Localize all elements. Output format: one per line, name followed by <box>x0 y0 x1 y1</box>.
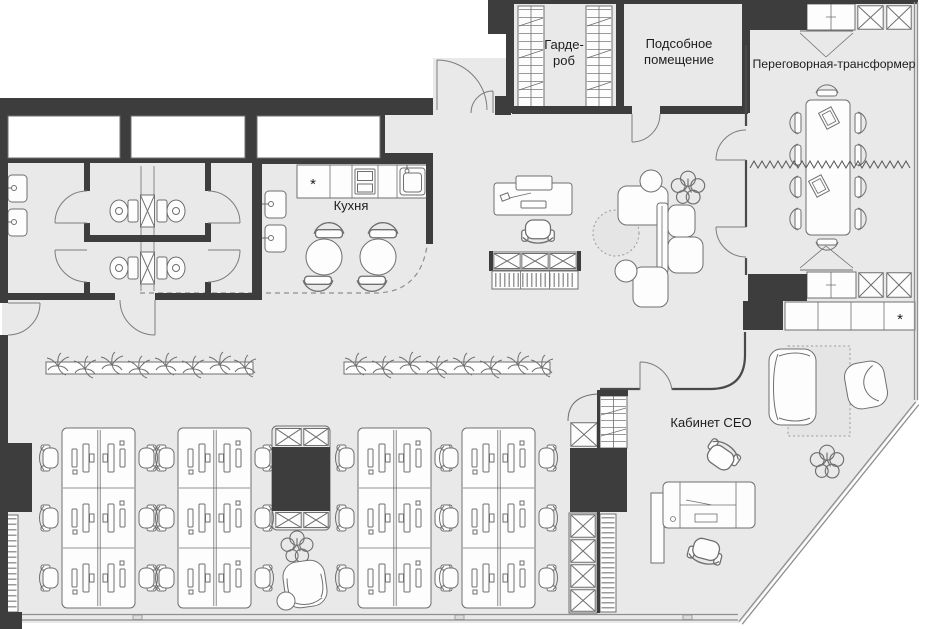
appliance-star-kitchen: * <box>310 176 316 193</box>
ceo-sofa <box>769 349 816 425</box>
pouf <box>277 592 295 610</box>
toilet <box>157 257 185 279</box>
lounge-sofa <box>668 205 695 237</box>
toilet <box>110 257 138 279</box>
toilet <box>157 200 185 222</box>
room-label-ceo: Кабинет CEO <box>670 415 751 430</box>
reception-monitor <box>516 176 552 190</box>
kitchen-table <box>306 239 342 275</box>
window <box>8 116 120 158</box>
storage-cabinet <box>858 6 883 30</box>
kitchen-sink <box>400 165 425 195</box>
ceo-cabinet-strip <box>785 302 915 330</box>
room-label-wardrobe: роб <box>553 53 575 68</box>
lounge-pouf <box>615 260 637 282</box>
room-label-meeting: Переговорная-трансформер <box>752 57 915 71</box>
reception-credenza <box>489 251 581 289</box>
plumbing-shaft <box>140 195 154 227</box>
storage-cabinet <box>859 273 883 297</box>
kitchen-table <box>360 239 396 275</box>
storage-cabinet <box>887 6 911 30</box>
windows <box>8 116 380 158</box>
room-label-utility: помещение <box>644 52 714 67</box>
wardrobe-closet <box>586 6 612 108</box>
bookshelf <box>600 514 616 612</box>
window <box>257 116 380 158</box>
floor-plan: Гарде- роб Подсобное помещение Переговор… <box>0 0 927 629</box>
room-label-kitchen: Кухня <box>334 198 369 213</box>
room-label-utility: Подсобное <box>646 36 713 51</box>
appliance-star-ceo: * <box>897 311 903 328</box>
window <box>131 116 245 158</box>
locker-block <box>272 426 330 530</box>
lounge-sofa <box>668 237 703 273</box>
lounge-sofa <box>633 267 668 307</box>
room-label-wardrobe: Гарде- <box>544 37 584 52</box>
kitchen-stove <box>355 169 375 194</box>
storage-cabinet <box>887 273 911 297</box>
toilet <box>110 200 138 222</box>
lounge-pouf <box>640 170 662 192</box>
lounge-sofa-back <box>657 203 668 273</box>
wardrobe-closet <box>518 6 544 108</box>
ceo-desk-return <box>651 493 664 563</box>
wardrobe-cabinet <box>600 396 627 448</box>
plumbing-shaft <box>140 252 154 284</box>
